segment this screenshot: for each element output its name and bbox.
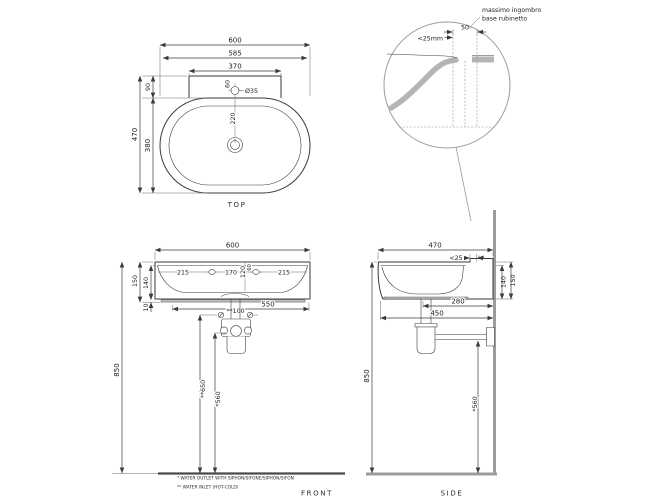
front-dim-hole-left: 215 <box>177 269 189 276</box>
detail-dim-50: 50 <box>461 25 469 32</box>
top-dim-hole-offset: 60 <box>225 80 232 88</box>
side-view-siphon <box>415 299 495 354</box>
side-dim-outlet-height: *560 <box>472 396 479 411</box>
side-dim-450: 450 <box>430 310 443 318</box>
side-dim-rear-gap: <25 <box>449 255 462 262</box>
top-dim-width: 600 <box>228 37 241 45</box>
side-dim-850: 850 <box>363 369 371 382</box>
front-dim-width: 600 <box>226 242 239 250</box>
detail-basin-wall-section <box>391 60 456 108</box>
detail-rear-ledge-section <box>472 57 494 63</box>
front-dim-height-inner: 140 <box>143 277 150 289</box>
footnote-water-outlet: * WATER OUTLET WITH SIPHON/SIFONE/SIPHON… <box>177 476 294 482</box>
top-dim-deck-width: 370 <box>228 63 241 71</box>
detail-circle <box>384 22 510 148</box>
front-dim-inlet-spacing: **100 <box>226 308 244 315</box>
front-dim-hole-spacing: 170 <box>225 269 237 276</box>
front-dim-inlet-height: **650 <box>200 380 207 398</box>
front-dim-hole-right: 215 <box>278 269 290 276</box>
footnote-water-inlet: ** WATER INLET (HOT-COLD) <box>177 485 239 491</box>
detail-note-line1: massimo ingombro <box>482 7 541 14</box>
front-view-label: FRONT <box>301 490 333 498</box>
top-dim-deck-depth: 90 <box>145 83 152 91</box>
front-dim-height: 150 <box>132 275 139 287</box>
top-view-label: TOP <box>227 201 247 209</box>
side-view: 470 <25 140 150 280 450 850 *560 SIDE <box>363 210 517 498</box>
detail-view: 50 <25mm massimo ingombro base rubinetto <box>384 7 541 221</box>
detail-note-line2: base rubinetto <box>482 16 527 23</box>
front-dim-plinth: 10 <box>143 303 150 311</box>
top-dim-hole-diameter: Ø35 <box>245 87 258 95</box>
front-view: 215 170 215 120 60 600 150 140 10 850 55… <box>112 242 345 498</box>
front-view-water-inlets: **100 <box>200 308 258 318</box>
detail-dim-max-tap: <25mm <box>417 36 443 43</box>
top-dim-width-inner: 585 <box>228 50 241 58</box>
detail-leader-line <box>456 147 471 221</box>
side-dim-height: 150 <box>510 274 517 286</box>
washbasin-technical-drawing: 600 585 370 470 90 380 60 Ø35 220 TOP 50… <box>0 0 667 500</box>
front-dim-outlet-height: *560 <box>215 391 222 406</box>
front-dim-850: 850 <box>113 363 121 376</box>
top-dim-drain-offset: 220 <box>230 112 237 124</box>
front-dim-550: 550 <box>261 301 274 309</box>
top-view: 600 585 370 470 90 380 60 Ø35 220 TOP <box>131 37 310 210</box>
side-dim-depth: 470 <box>428 242 441 250</box>
side-view-label: SIDE <box>441 490 464 498</box>
front-view-plinth <box>161 300 305 303</box>
top-dim-bowl-depth: 380 <box>144 139 152 152</box>
side-view-wall-flange <box>487 328 495 347</box>
side-dim-280: 280 <box>451 298 464 306</box>
top-dim-depth: 470 <box>131 128 139 141</box>
technical-drawing-sheet: 600 585 370 470 90 380 60 Ø35 220 TOP 50… <box>0 0 667 500</box>
front-dim-60: 60 <box>247 264 253 271</box>
side-dim-height-inner: 140 <box>501 276 508 288</box>
side-view-basin-outline <box>378 259 493 300</box>
